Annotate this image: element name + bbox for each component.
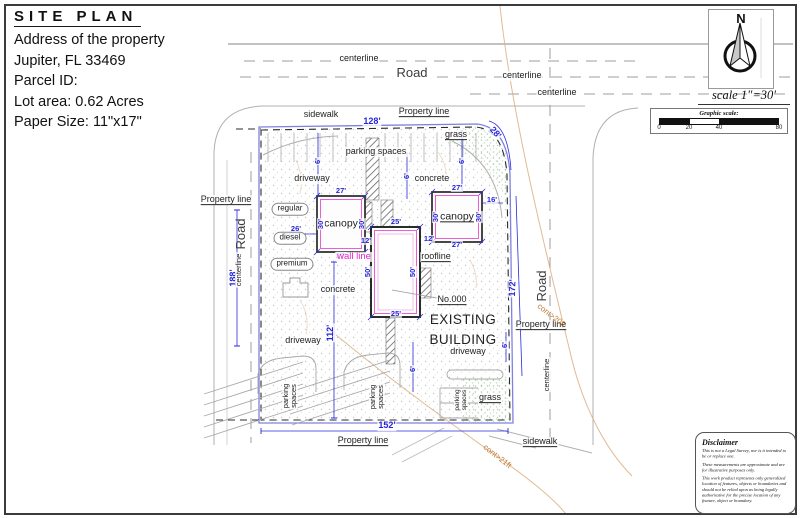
disclaimer-box: Disclaimer This is not a Legal Survey, n…: [695, 432, 796, 514]
paper-size-line: Paper Size: 11"x17": [14, 112, 165, 133]
disclaimer-paragraph: This work product represents only genera…: [702, 476, 789, 504]
canopy-right-shape: [432, 192, 482, 242]
north-label: N: [709, 11, 773, 26]
scale-note: scale 1"=30': [698, 88, 790, 105]
scale-tick-20: 20: [686, 125, 693, 131]
disclaimer-title: Disclaimer: [702, 438, 789, 447]
graphic-scale-ticks: 0 20 40 80: [659, 125, 779, 133]
city-line: Jupiter, FL 33469: [14, 51, 165, 72]
grass-area-se: [462, 378, 510, 422]
sheet-title: SITE PLAN: [14, 8, 141, 27]
graphic-scale: Graphic scale: 0 20 40 80: [650, 108, 788, 134]
address-line: Address of the property: [14, 30, 165, 51]
lot-area-line: Lot area: 0.62 Acres: [14, 92, 165, 113]
parcel: [216, 124, 513, 423]
canopy-left-shape: [317, 196, 365, 252]
scale-tick-0: 0: [657, 125, 660, 131]
title-block: SITE PLAN Address of the property Jupite…: [14, 8, 165, 133]
disclaimer-text: This is not a Legal Survey, nor is it in…: [702, 448, 789, 504]
graphic-scale-bar: [659, 118, 779, 125]
graphic-scale-label: Graphic scale:: [651, 110, 787, 117]
scale-tick-40: 40: [716, 125, 723, 131]
disclaimer-paragraph: This is not a Legal Survey, nor is it in…: [702, 448, 789, 459]
disclaimer-paragraph: These measurements are approximate and a…: [702, 462, 789, 473]
parcel-id-line: Parcel ID:: [14, 71, 165, 92]
north-arrow-box: N: [708, 9, 774, 89]
site-plan-sheet: centerlineRoadcenterlinecenterlinesidewa…: [0, 0, 800, 518]
scale-tick-80: 80: [776, 125, 783, 131]
